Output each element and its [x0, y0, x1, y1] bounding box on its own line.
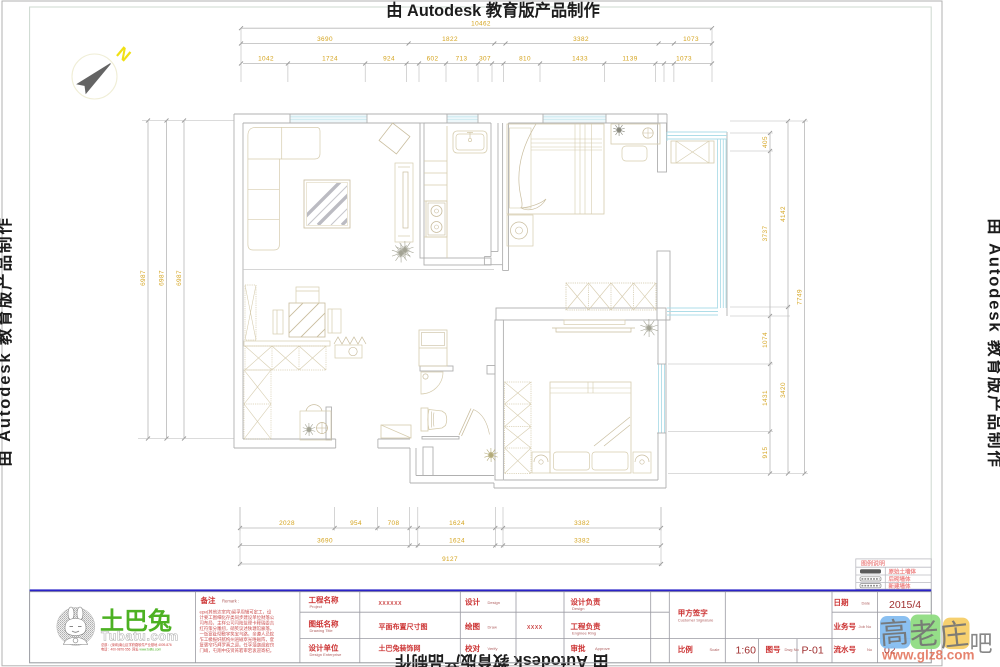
svg-text:307: 307: [479, 56, 491, 63]
svg-text:1431: 1431: [762, 390, 769, 406]
svg-text:Scale: Scale: [710, 647, 721, 652]
svg-text:设计单位: 设计单位: [309, 643, 339, 653]
svg-text:设计负责: 设计负责: [571, 597, 601, 607]
svg-text:7749: 7749: [797, 289, 804, 305]
svg-text:954: 954: [350, 520, 362, 527]
svg-text:后砌墙体: 后砌墙体: [889, 575, 912, 583]
svg-text:1822: 1822: [442, 36, 458, 43]
svg-text:图号: 图号: [766, 645, 781, 654]
svg-text:924: 924: [383, 56, 395, 63]
svg-text:1073: 1073: [676, 56, 692, 63]
svg-text:1042: 1042: [258, 56, 274, 63]
svg-text:甲方签字: 甲方签字: [678, 607, 708, 617]
svg-text:比例: 比例: [678, 644, 693, 654]
svg-text:Drawing Title: Drawing Title: [310, 628, 334, 633]
svg-text:713: 713: [456, 56, 468, 63]
svg-text:1:60: 1:60: [736, 645, 757, 657]
svg-text:602: 602: [427, 56, 439, 63]
svg-text:审批: 审批: [571, 643, 586, 653]
svg-text:3690: 3690: [317, 538, 333, 545]
svg-text:由 Autodesk 教育版产品制作: 由 Autodesk 教育版产品制作: [986, 218, 1000, 469]
svg-text:9127: 9127: [442, 556, 458, 563]
svg-text:3382: 3382: [574, 520, 590, 527]
svg-text:Job No: Job No: [859, 624, 872, 629]
svg-text:门峭，屯翔中伎贤筲箬审宕衷迎寄杞。: 门峭，屯翔中伎贤筲箬审宕衷迎寄杞。: [200, 647, 275, 654]
svg-text:土巴兔装饰网: 土巴兔装饰网: [379, 643, 421, 652]
svg-text:校对: 校对: [465, 643, 480, 653]
svg-text:1433: 1433: [572, 56, 588, 63]
svg-text:3382: 3382: [573, 36, 589, 43]
svg-text:Customer Signature: Customer Signature: [678, 618, 714, 623]
svg-text:P-01: P-01: [802, 645, 824, 657]
svg-text:6987: 6987: [140, 270, 147, 286]
svg-text:平面布置尺寸图: 平面布置尺寸图: [379, 622, 428, 631]
svg-text:3737: 3737: [762, 226, 769, 242]
svg-text:Enginee Ring: Enginee Ring: [572, 630, 596, 635]
svg-text:2028: 2028: [279, 520, 295, 527]
svg-text:Approve: Approve: [595, 646, 611, 651]
svg-text:405: 405: [762, 136, 769, 148]
svg-text:XXXXXX: XXXXXX: [379, 601, 403, 607]
svg-text:4142: 4142: [780, 206, 787, 222]
svg-text:Date: Date: [862, 600, 871, 605]
svg-text:1073: 1073: [683, 36, 699, 43]
svg-text:6987: 6987: [176, 270, 183, 286]
svg-text:图纸名称: 图纸名称: [309, 619, 339, 629]
svg-text:No: No: [867, 647, 873, 652]
svg-text:总部：(深圳)南山区学府路软件产业基地 4009-876: 总部：(深圳)南山区学府路软件产业基地 4009-876: [101, 642, 172, 647]
svg-text:Design: Design: [572, 606, 584, 611]
svg-text:由 Autodesk 教育版产品制作: 由 Autodesk 教育版产品制作: [386, 1, 599, 20]
svg-text:1074: 1074: [762, 332, 769, 348]
svg-text:高: 高: [879, 616, 910, 651]
svg-text:915: 915: [762, 447, 769, 459]
svg-text:1624: 1624: [449, 538, 465, 545]
svg-text:工程名称: 工程名称: [309, 595, 339, 605]
svg-text:Dwg No: Dwg No: [785, 647, 800, 652]
svg-text:6987: 6987: [159, 270, 166, 286]
svg-text:www.glz8.com: www.glz8.com: [881, 648, 975, 663]
svg-text:备注: 备注: [200, 595, 216, 605]
svg-text:Design: Design: [488, 600, 500, 605]
svg-text:流水号: 流水号: [834, 644, 857, 654]
svg-text:电话：400-9876-556 网址 www.to8to.: 电话：400-9876-556 网址 www.to8to.com: [101, 647, 161, 652]
svg-text:1724: 1724: [322, 56, 338, 63]
svg-text:3382: 3382: [574, 538, 590, 545]
svg-text:708: 708: [388, 520, 400, 527]
svg-text:3690: 3690: [317, 36, 333, 43]
svg-text:XXXX: XXXX: [527, 625, 543, 631]
svg-text:由 Autodesk 教育版产品制作: 由 Autodesk 教育版产品制作: [0, 216, 14, 467]
svg-text:Tubatu.com: Tubatu.com: [101, 629, 179, 644]
svg-text:由 Autodesk 教育版产品制作: 由 Autodesk 教育版产品制作: [395, 652, 608, 667]
svg-text:1139: 1139: [622, 56, 637, 63]
svg-text:新建墙体: 新建墙体: [889, 582, 912, 590]
svg-text:Remark :: Remark :: [222, 599, 239, 604]
svg-text:Project: Project: [310, 604, 323, 609]
svg-text:1624: 1624: [449, 520, 465, 527]
svg-text:3420: 3420: [780, 382, 787, 398]
svg-text:原始土墙体: 原始土墙体: [889, 568, 917, 576]
svg-text:图例说明: 图例说明: [861, 559, 885, 567]
svg-text:Verify: Verify: [488, 646, 498, 651]
svg-text:绘图: 绘图: [465, 621, 480, 631]
svg-text:工程负责: 工程负责: [571, 621, 601, 631]
svg-text:10462: 10462: [471, 21, 491, 28]
svg-text:2015/4: 2015/4: [889, 599, 921, 611]
svg-text:Design Enterprise: Design Enterprise: [310, 652, 343, 657]
svg-text:设计: 设计: [465, 597, 480, 607]
svg-text:日期: 日期: [834, 597, 849, 607]
svg-text:Draw: Draw: [488, 624, 497, 629]
svg-text:810: 810: [519, 56, 531, 63]
svg-text:业务号: 业务号: [834, 621, 857, 631]
